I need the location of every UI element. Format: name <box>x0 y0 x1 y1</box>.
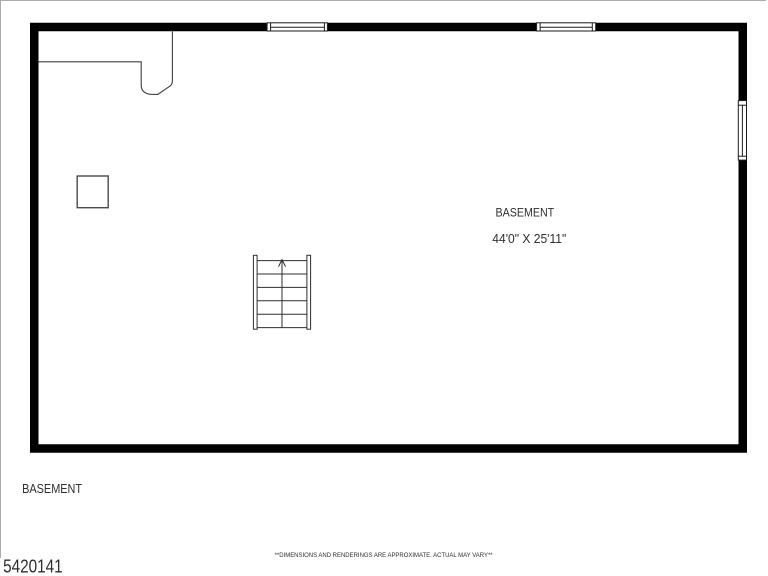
svg-text:BASEMENT: BASEMENT <box>496 206 555 220</box>
svg-text:BASEMENT: BASEMENT <box>22 481 82 496</box>
svg-text:**DIMENSIONS AND RENDERINGS AR: **DIMENSIONS AND RENDERINGS ARE APPROXIM… <box>275 552 494 559</box>
svg-text:5420141: 5420141 <box>3 556 63 576</box>
svg-text:44'0" X 25'11": 44'0" X 25'11" <box>492 232 566 246</box>
